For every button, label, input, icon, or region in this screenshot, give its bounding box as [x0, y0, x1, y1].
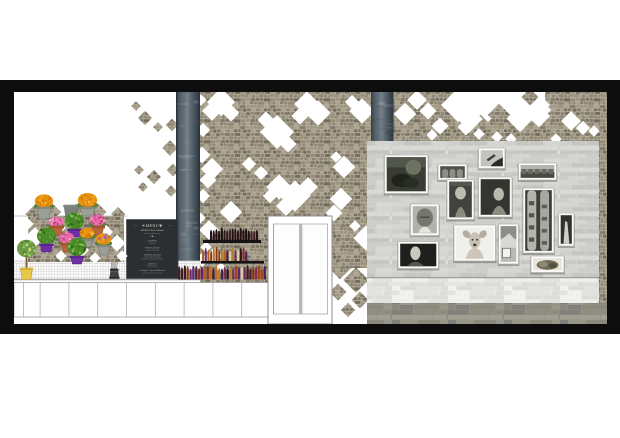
svg-text:▪ ■ ▪: ▪ ■ ▪: [150, 235, 155, 238]
svg-text:SWEETS: SWEETS: [148, 262, 157, 265]
svg-text:COFFEES: COFFEES: [148, 240, 158, 243]
svg-text:BRUNCH from a Board: BRUNCH from a Board: [141, 229, 164, 232]
svg-text:Designer + New Wildflowers: Designer + New Wildflowers: [140, 269, 165, 272]
svg-text:❧MENU❦: ❧MENU❦: [142, 223, 163, 228]
svg-text:FRESH JUICES: FRESH JUICES: [145, 246, 160, 249]
svg-text:~~: ~~: [168, 224, 172, 228]
svg-text:~~: ~~: [133, 224, 137, 228]
svg-text:GARDEN SALADS: GARDEN SALADS: [144, 253, 162, 256]
